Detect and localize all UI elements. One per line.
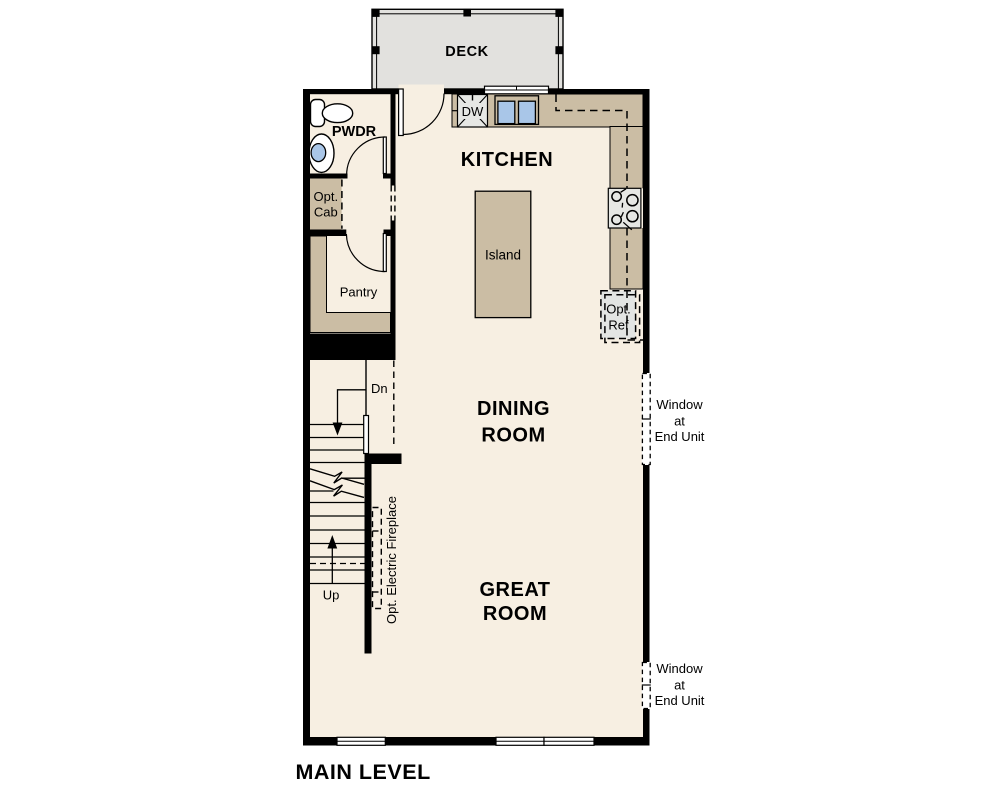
svg-text:MAIN LEVEL: MAIN LEVEL <box>296 760 431 784</box>
svg-text:Island: Island <box>485 248 521 263</box>
svg-text:ROOM: ROOM <box>483 603 547 625</box>
svg-text:End Unit: End Unit <box>655 693 705 708</box>
svg-text:PWDR: PWDR <box>332 124 377 140</box>
svg-text:Window: Window <box>656 397 703 412</box>
svg-text:Up: Up <box>323 588 340 603</box>
svg-text:KITCHEN: KITCHEN <box>461 149 553 171</box>
svg-text:Window: Window <box>656 661 703 676</box>
svg-text:Cab: Cab <box>314 205 338 220</box>
svg-text:at: at <box>674 678 685 693</box>
svg-text:Opt.: Opt. <box>314 189 339 204</box>
svg-text:End Unit: End Unit <box>655 429 705 444</box>
svg-text:DINING: DINING <box>477 398 550 420</box>
svg-text:Ref: Ref <box>608 318 629 333</box>
svg-text:DECK: DECK <box>445 44 489 60</box>
svg-text:at: at <box>674 414 685 429</box>
svg-text:Dn: Dn <box>371 381 388 396</box>
svg-text:Opt. Electric Fireplace: Opt. Electric Fireplace <box>384 496 399 624</box>
svg-text:DW: DW <box>462 104 484 119</box>
svg-text:ROOM: ROOM <box>481 425 545 447</box>
svg-text:Pantry: Pantry <box>340 285 378 300</box>
svg-text:GREAT: GREAT <box>479 579 550 601</box>
